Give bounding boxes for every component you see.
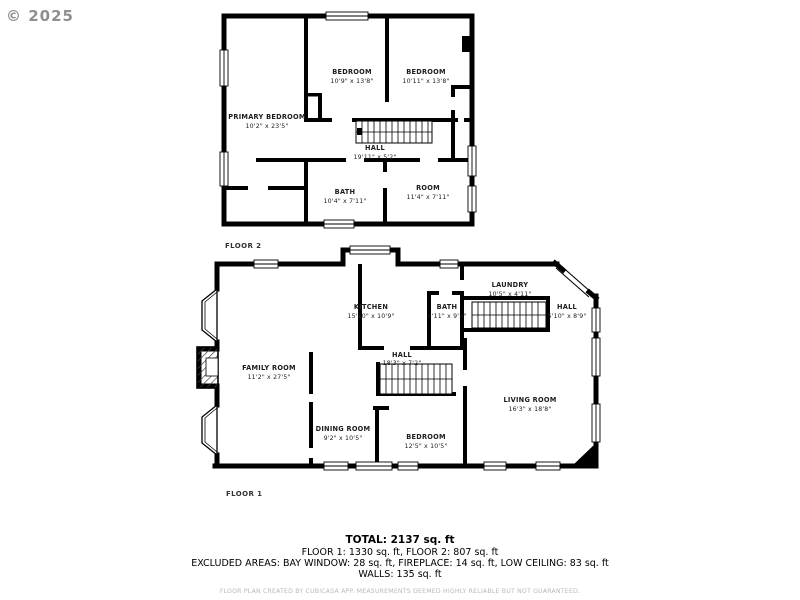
floor2-room-label: ROOM bbox=[416, 184, 440, 192]
summary-excluded: EXCLUDED AREAS: BAY WINDOW: 28 sq. ft, F… bbox=[191, 558, 609, 569]
floorplan-page: © 2025 bbox=[0, 0, 800, 600]
floor1-kitchen-label: KITCHEN bbox=[354, 303, 388, 311]
floor2-bath-label: BATH bbox=[335, 188, 356, 196]
floor1-bedroom-label: BEDROOM bbox=[406, 433, 446, 441]
summary-floors: FLOOR 1: 1330 sq. ft, FLOOR 2: 807 sq. f… bbox=[302, 547, 499, 558]
floor2-hall-label: HALL bbox=[365, 144, 386, 152]
summary-total: TOTAL: 2137 sq. ft bbox=[346, 534, 455, 546]
floor2-bedroom2-dims: 10'11" x 13'8" bbox=[402, 78, 449, 85]
floor2-primary-bedroom-label: PRIMARY BEDROOM bbox=[228, 113, 305, 121]
floor1-hall-main-dims: 18'3" x 7'2" bbox=[383, 360, 422, 367]
floor2-staircase bbox=[356, 121, 432, 143]
summary-disclaimer: FLOOR PLAN CREATED BY CUBICASA APP. MEAS… bbox=[220, 588, 580, 595]
floorplan-image: © 2025 bbox=[0, 0, 800, 600]
floor1-family-room-dims: 11'2" x 27'5" bbox=[248, 374, 291, 381]
floor1-laundry-dims: 10'5" x 4'11" bbox=[489, 291, 532, 298]
floor2-tag: FLOOR 2 bbox=[225, 242, 261, 250]
floor2-hall-dims: 19'11" x 5'2" bbox=[354, 154, 397, 161]
floor1-bay-window-upper bbox=[202, 289, 217, 342]
floor1-bath-label: BATH bbox=[437, 303, 458, 311]
floor2-room-dims: 11'4" x 7'11" bbox=[407, 194, 450, 201]
floor1-dining-label: DINING ROOM bbox=[316, 425, 371, 433]
floor1-bay-window-lower bbox=[202, 405, 217, 455]
floor1-corner-fill bbox=[572, 443, 596, 466]
floor1-living-room-dims: 16'3" x 18'8" bbox=[509, 406, 552, 413]
floor2-bedroom2-label: BEDROOM bbox=[406, 68, 446, 76]
floor1-hall-small-label: HALL bbox=[557, 303, 578, 311]
floor2-bath-dims: 10'4" x 7'11" bbox=[324, 198, 367, 205]
floor1-hall-small-dims: 5'10" x 8'9" bbox=[548, 313, 587, 320]
floor1-staircase-right bbox=[472, 302, 546, 328]
floor1-bedroom-dims: 12'5" x 10'5" bbox=[405, 443, 448, 450]
summary-walls: WALLS: 135 sq. ft bbox=[358, 569, 442, 580]
floor1-family-room-label: FAMILY ROOM bbox=[242, 364, 296, 372]
floor1-kitchen-dims: 15'10" x 10'9" bbox=[347, 313, 394, 320]
floor2-bedroom1-label: BEDROOM bbox=[332, 68, 372, 76]
floor2-plan: PRIMARY BEDROOM 10'2" x 23'5" BEDROOM 10… bbox=[220, 12, 476, 250]
floor1-staircase-center bbox=[380, 364, 452, 394]
floor2-primary-bedroom-dims: 10'2" x 23'5" bbox=[246, 123, 289, 130]
copyright-watermark: © 2025 bbox=[6, 7, 74, 25]
summary-block: TOTAL: 2137 sq. ft FLOOR 1: 1330 sq. ft,… bbox=[191, 534, 609, 595]
floor1-tag: FLOOR 1 bbox=[226, 490, 262, 498]
floor2-bedroom1-dims: 10'9" x 13'8" bbox=[331, 78, 374, 85]
floor2-chimney bbox=[462, 36, 473, 52]
floor1-dining-dims: 9'2" x 10'5" bbox=[324, 435, 363, 442]
floor1-bath-dims: 4'11" x 9'2" bbox=[428, 313, 467, 320]
floor1-plan: FAMILY ROOM 11'2" x 27'5" KITCHEN 15'10"… bbox=[197, 246, 600, 498]
floor1-hall-main-label: HALL bbox=[392, 351, 413, 359]
floor1-fireplace bbox=[197, 347, 218, 388]
floor1-laundry-label: LAUNDRY bbox=[492, 281, 529, 289]
floor1-living-room-label: LIVING ROOM bbox=[503, 396, 556, 404]
